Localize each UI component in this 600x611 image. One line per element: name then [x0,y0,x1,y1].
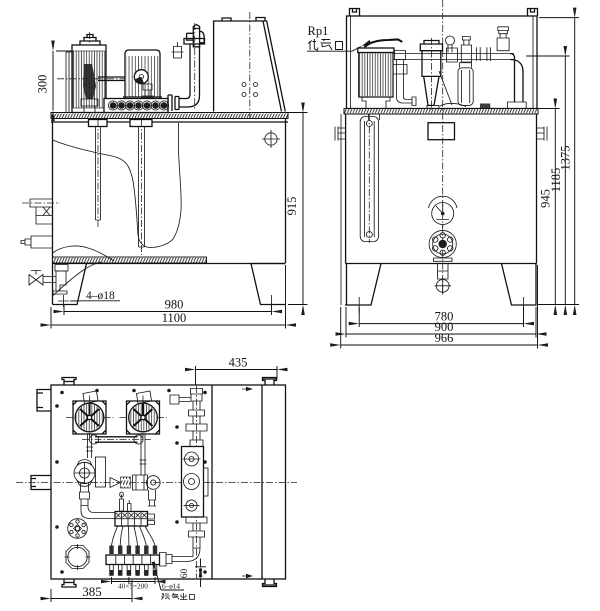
svg-text:Rp1: Rp1 [308,24,329,38]
svg-text:435: 435 [229,356,248,370]
svg-text:1100: 1100 [162,311,187,325]
svg-text:6–ø14: 6–ø14 [162,583,180,591]
svg-text:4–ø18: 4–ø18 [86,290,115,302]
svg-text:40×5=200: 40×5=200 [118,583,148,591]
svg-text:1375: 1375 [559,146,573,171]
svg-text:385: 385 [82,584,102,599]
svg-text:300: 300 [36,75,50,94]
svg-text:966: 966 [435,331,454,345]
svg-text:980: 980 [165,298,184,312]
svg-text:915: 915 [285,197,299,216]
svg-text:60: 60 [180,569,190,579]
